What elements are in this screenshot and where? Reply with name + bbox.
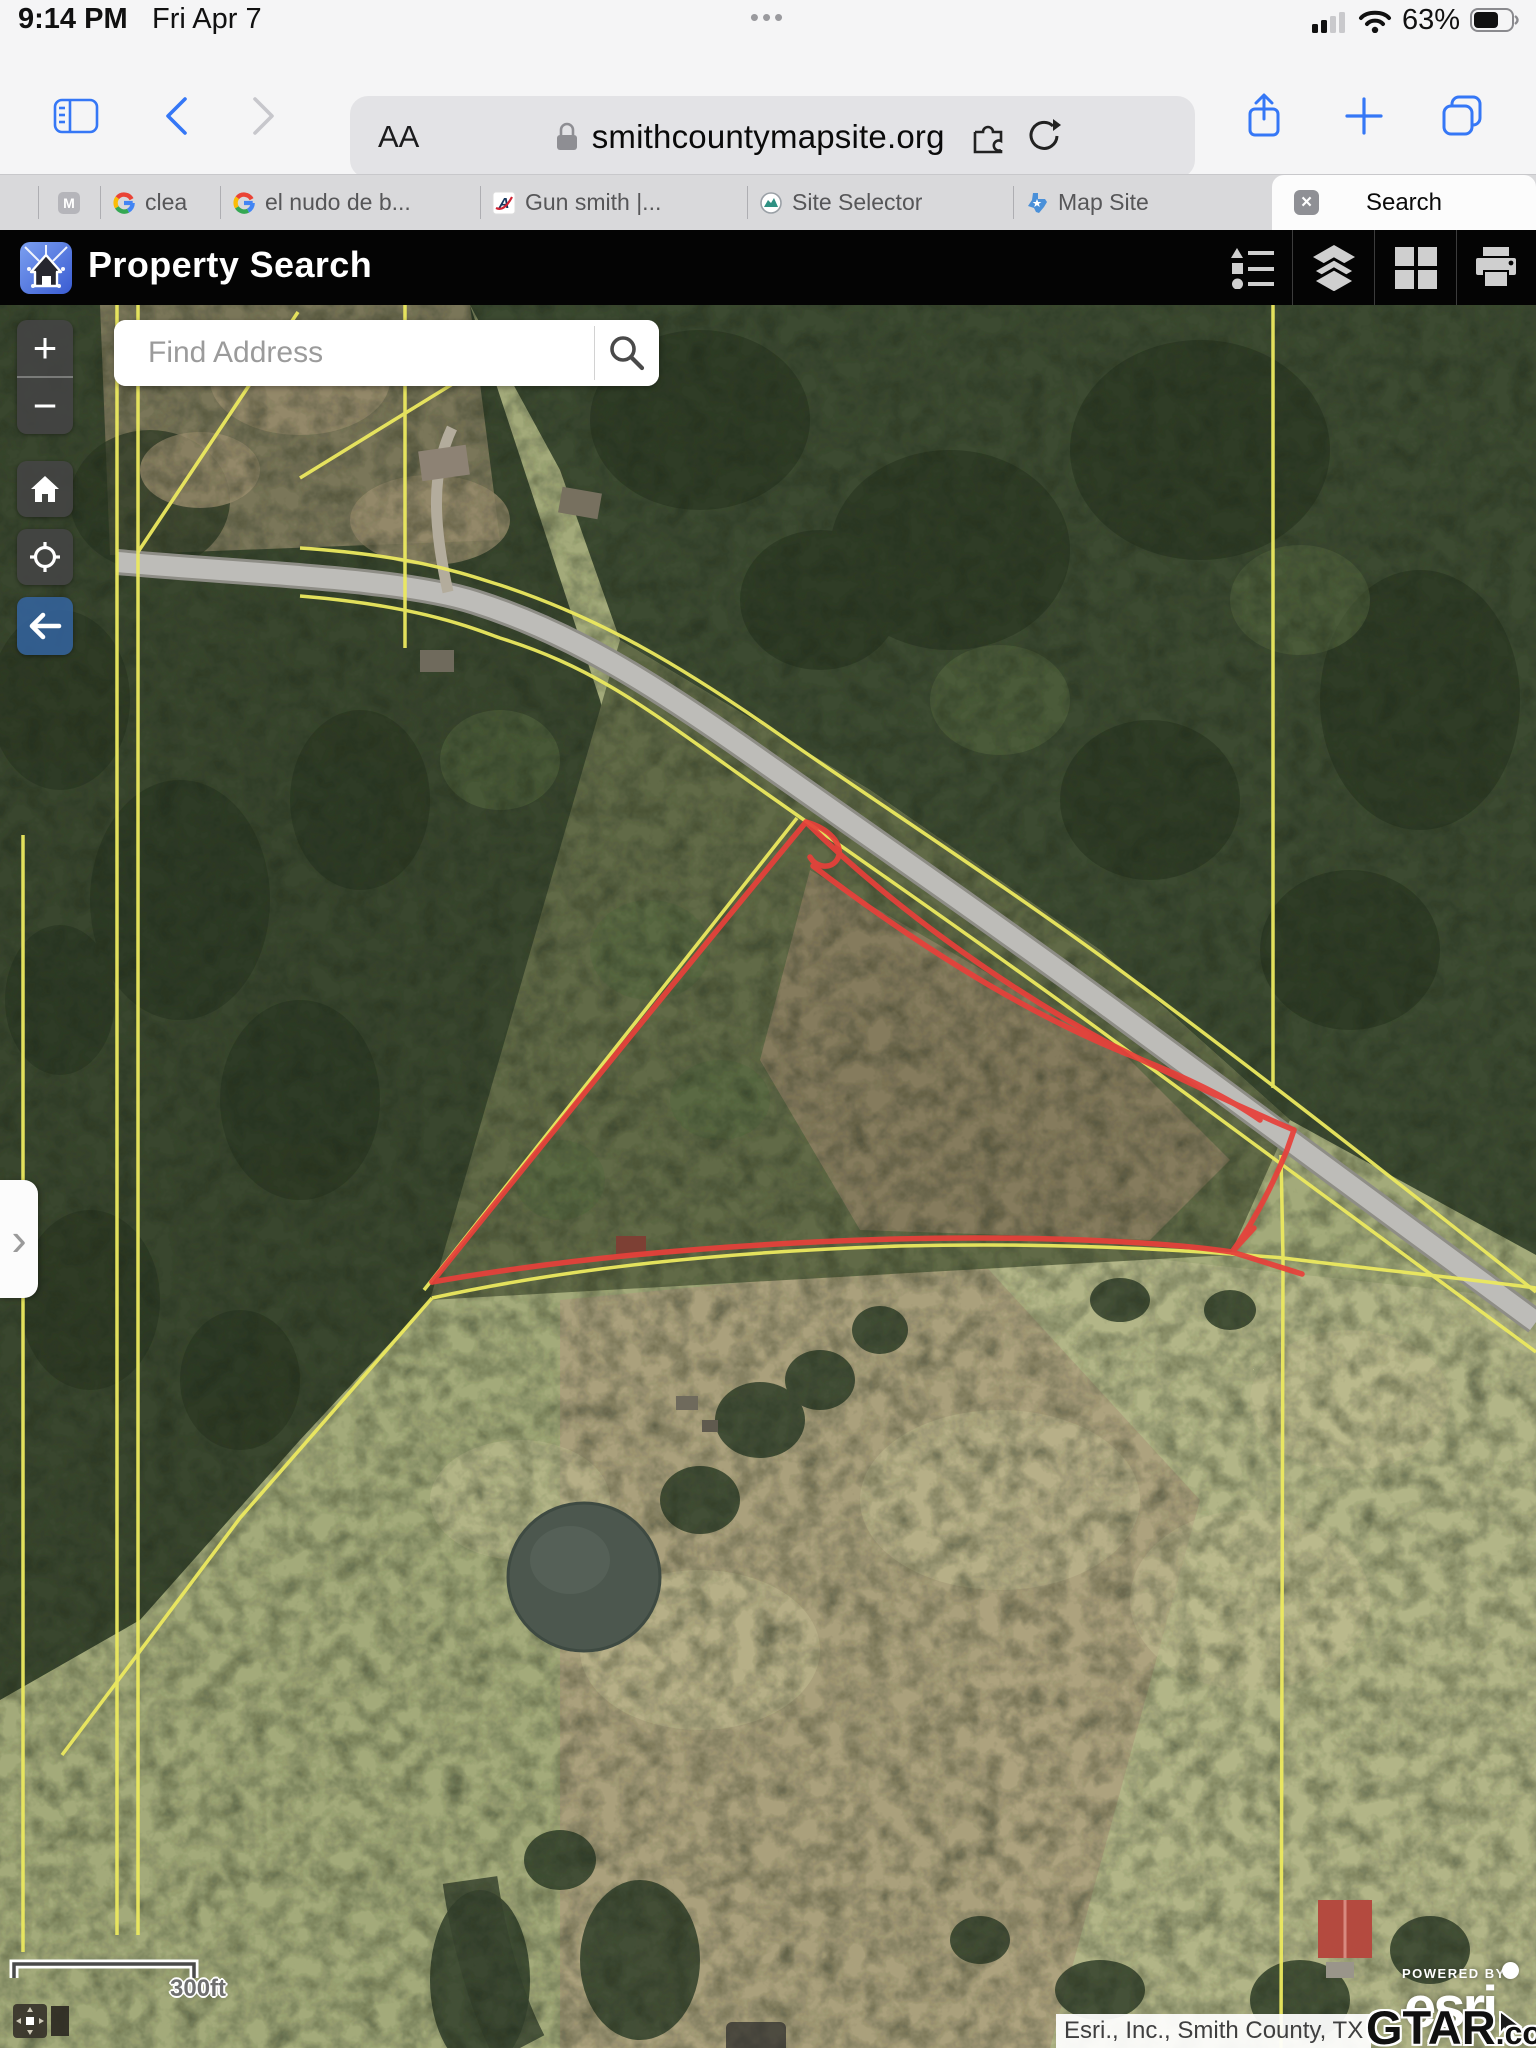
extensions-puzzle-icon[interactable]: [967, 118, 1009, 156]
share-icon[interactable]: [1240, 92, 1288, 140]
print-button[interactable]: [1456, 230, 1536, 305]
texas-star-favicon-icon: [1025, 191, 1049, 215]
tab-search-active[interactable]: Search ×: [1272, 175, 1536, 230]
tab-gun-smith[interactable]: Gun smith |...: [480, 175, 747, 230]
tabs-overview-icon[interactable]: [1438, 92, 1486, 140]
sidebar-icon[interactable]: [52, 92, 100, 140]
browser-toolbar: AA smithcountymapsite.org: [0, 40, 1536, 175]
pan-widget[interactable]: [13, 2004, 69, 2038]
google-favicon-icon: [232, 191, 256, 215]
reader-options-button[interactable]: AA: [378, 119, 419, 155]
tab-el-nudo[interactable]: el nudo de b...: [220, 175, 480, 230]
battery-percent: 63%: [1402, 4, 1460, 37]
find-address-box: [114, 320, 659, 386]
find-address-input[interactable]: [114, 320, 594, 386]
page-dots-icon: •••: [0, 2, 1536, 33]
tab-title: el nudo de b...: [265, 189, 411, 216]
crosshair-icon: [29, 541, 61, 573]
back-tool-button[interactable]: [17, 597, 73, 655]
map-attribution: Esri., Inc., Smith County, TX: [1056, 2014, 1371, 2048]
arrow-left-icon: [27, 611, 63, 641]
home-icon: [29, 474, 61, 504]
tab-m[interactable]: [38, 175, 100, 230]
address-bar[interactable]: AA smithcountymapsite.org: [350, 96, 1195, 178]
mls-watermark: GTAR.com: [1366, 2000, 1536, 2048]
address-search-button[interactable]: [595, 320, 659, 386]
chevron-right-icon: ›: [11, 1212, 26, 1266]
bottom-center-widget[interactable]: [726, 2022, 786, 2048]
app-logo-icon: [20, 242, 72, 294]
zoom-in-button[interactable]: +: [17, 320, 73, 376]
basemap-gallery-button[interactable]: [1376, 230, 1456, 305]
new-tab-icon[interactable]: [1340, 92, 1388, 140]
ipad-screen: A M 9:14 PM Fri Apr 7 •••: [0, 0, 1536, 2048]
pond: [508, 1503, 660, 1651]
wifi-icon: [1358, 7, 1392, 33]
my-location-button[interactable]: [17, 529, 73, 585]
battery-icon: [1470, 7, 1522, 33]
tab-map-site[interactable]: Map Site: [1013, 175, 1272, 230]
tab-title: clea: [145, 189, 187, 216]
tab-title: Gun smith |...: [525, 189, 661, 216]
scale-label: 300ft: [170, 1975, 226, 2003]
layers-button[interactable]: [1294, 230, 1374, 305]
search-icon: [607, 333, 647, 373]
tab-site-selector[interactable]: Site Selector: [747, 175, 1013, 230]
lock-icon: [554, 122, 580, 152]
tab-partial[interactable]: [0, 175, 38, 230]
tab-clea[interactable]: clea: [100, 175, 220, 230]
reload-icon[interactable]: [1021, 117, 1061, 157]
zoom-control: + −: [17, 320, 73, 434]
mountain-favicon-icon: [759, 191, 783, 215]
tab-title: Map Site: [1058, 189, 1149, 216]
google-favicon-icon: [112, 191, 136, 215]
panel-expand-button[interactable]: ›: [0, 1180, 38, 1298]
page-title: Property Search: [88, 244, 372, 286]
m-favicon-icon: [57, 191, 81, 215]
url-text: smithcountymapsite.org: [592, 118, 945, 156]
home-extent-button[interactable]: [17, 461, 73, 517]
legend-button[interactable]: [1212, 230, 1292, 305]
academy-favicon-icon: [492, 191, 516, 215]
zoom-out-button[interactable]: −: [17, 378, 73, 434]
esri-globe-icon: [1502, 1962, 1519, 1979]
tab-bar: clea el nudo de b... Gun smith |... Site…: [0, 175, 1536, 230]
map-canvas[interactable]: [0, 305, 1536, 2048]
cellular-icon: [1312, 7, 1348, 33]
tab-title: Site Selector: [792, 189, 922, 216]
map-imagery: [0, 305, 1536, 2048]
tab-close-icon[interactable]: ×: [1294, 190, 1319, 215]
back-icon[interactable]: [152, 92, 200, 140]
forward-icon[interactable]: [240, 92, 288, 140]
app-header: Property Search: [0, 230, 1536, 305]
status-bar: 9:14 PM Fri Apr 7 ••• 63%: [0, 0, 1536, 40]
